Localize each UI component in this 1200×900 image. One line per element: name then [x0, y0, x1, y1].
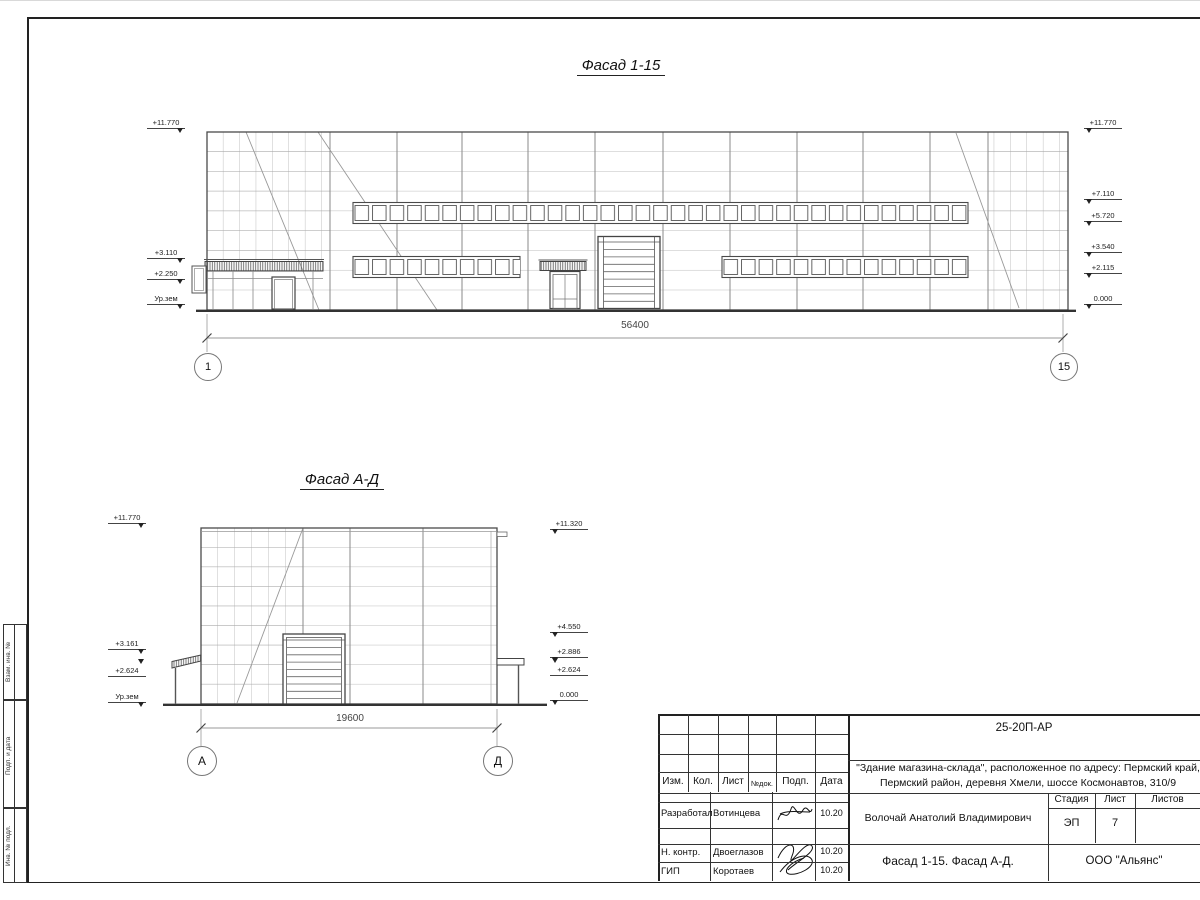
facade-a-d-title-wrap: Фасад А-Д [262, 471, 422, 489]
doc-number: 25-20П-АР [848, 722, 1200, 734]
drawing-sheet: { "facade1": { "title": "Фасад 1-15", "d… [0, 0, 1200, 900]
chief-name: Волочай Анатолий Владимирович [848, 812, 1048, 824]
name-ncontrol: Двоеглазов [713, 847, 764, 858]
stage-value: ЭП [1048, 817, 1095, 829]
axis-bubble-a: А [187, 746, 217, 776]
facade-1-15-drawing [192, 132, 1076, 352]
elevation-mark: +11.320 [550, 519, 594, 530]
elevation-mark: +3.161 [102, 639, 146, 650]
elevation-mark: +2.624 [550, 665, 594, 676]
facade-a-d-title: Фасад А-Д [300, 471, 384, 490]
sheet-number: 7 [1095, 817, 1135, 829]
col-header-ndok: №док. [748, 779, 776, 788]
elevation-mark: Ур.зем [102, 692, 146, 703]
project-address-line1: "Здание магазина-склада", расположенное … [856, 762, 1200, 774]
company-name: ООО "Альянс" [1048, 855, 1200, 867]
elevation-mark: 0.000 [1084, 294, 1128, 305]
elevation-mark: +2.624 [102, 666, 146, 677]
role-ncontrol: Н. контр. [661, 847, 700, 858]
elevation-mark: +11.770 [1084, 118, 1128, 129]
elevation-mark: +2.250 [141, 269, 185, 280]
role-developed: Разработал [661, 808, 713, 819]
elevation-mark: +3.110 [141, 248, 185, 259]
dimension-19600: 19600 [300, 713, 400, 724]
elevation-mark: Ур.зем [141, 294, 185, 305]
col-header-izm: Изм. [658, 776, 688, 787]
name-gip: Коротаев [713, 866, 754, 877]
project-address-line2: Пермский район, деревня Хмели, шоссе Кос… [856, 777, 1200, 789]
elevation-mark: +3.540 [1084, 242, 1128, 253]
name-developed: Вотинцева [713, 808, 760, 819]
facade-1-15-title-wrap: Фасад 1-15 [541, 57, 701, 75]
elevation-mark: 0.000 [550, 690, 594, 701]
signature-scribble [778, 845, 813, 875]
elevation-mark: +5.720 [1084, 211, 1128, 222]
elevation-mark: +2.115 [1084, 263, 1128, 274]
axis-bubble-d: Д [483, 746, 513, 776]
col-header-podp: Подп. [776, 776, 815, 787]
sheet-label: Лист [1095, 794, 1135, 805]
axis-bubble-15: 15 [1050, 353, 1078, 381]
dimension-56400: 56400 [585, 320, 685, 331]
axis-bubble-1: 1 [194, 353, 222, 381]
elevation-mark: +2.886 [550, 647, 594, 658]
date-gip: 10.20 [815, 865, 848, 875]
signature-votintseva [778, 807, 812, 820]
date-ncontrol: 10.20 [815, 846, 848, 856]
elevation-mark: +7.110 [1084, 189, 1128, 200]
col-header-kol: Кол. [688, 776, 718, 787]
stage-label: Стадия [1048, 794, 1095, 805]
role-gip: ГИП [661, 866, 680, 877]
elevation-mark: +11.770 [102, 513, 146, 524]
date-developed: 10.20 [815, 808, 848, 818]
col-header-data: Дата [815, 776, 848, 787]
elevation-mark: +11.770 [141, 118, 185, 129]
sheet-title: Фасад 1-15. Фасад А-Д. [848, 854, 1048, 868]
elevation-mark: +4.550 [550, 622, 594, 633]
sheets-label: Листов [1135, 794, 1200, 805]
col-header-list: Лист [718, 776, 748, 787]
facade-1-15-title: Фасад 1-15 [577, 57, 666, 76]
